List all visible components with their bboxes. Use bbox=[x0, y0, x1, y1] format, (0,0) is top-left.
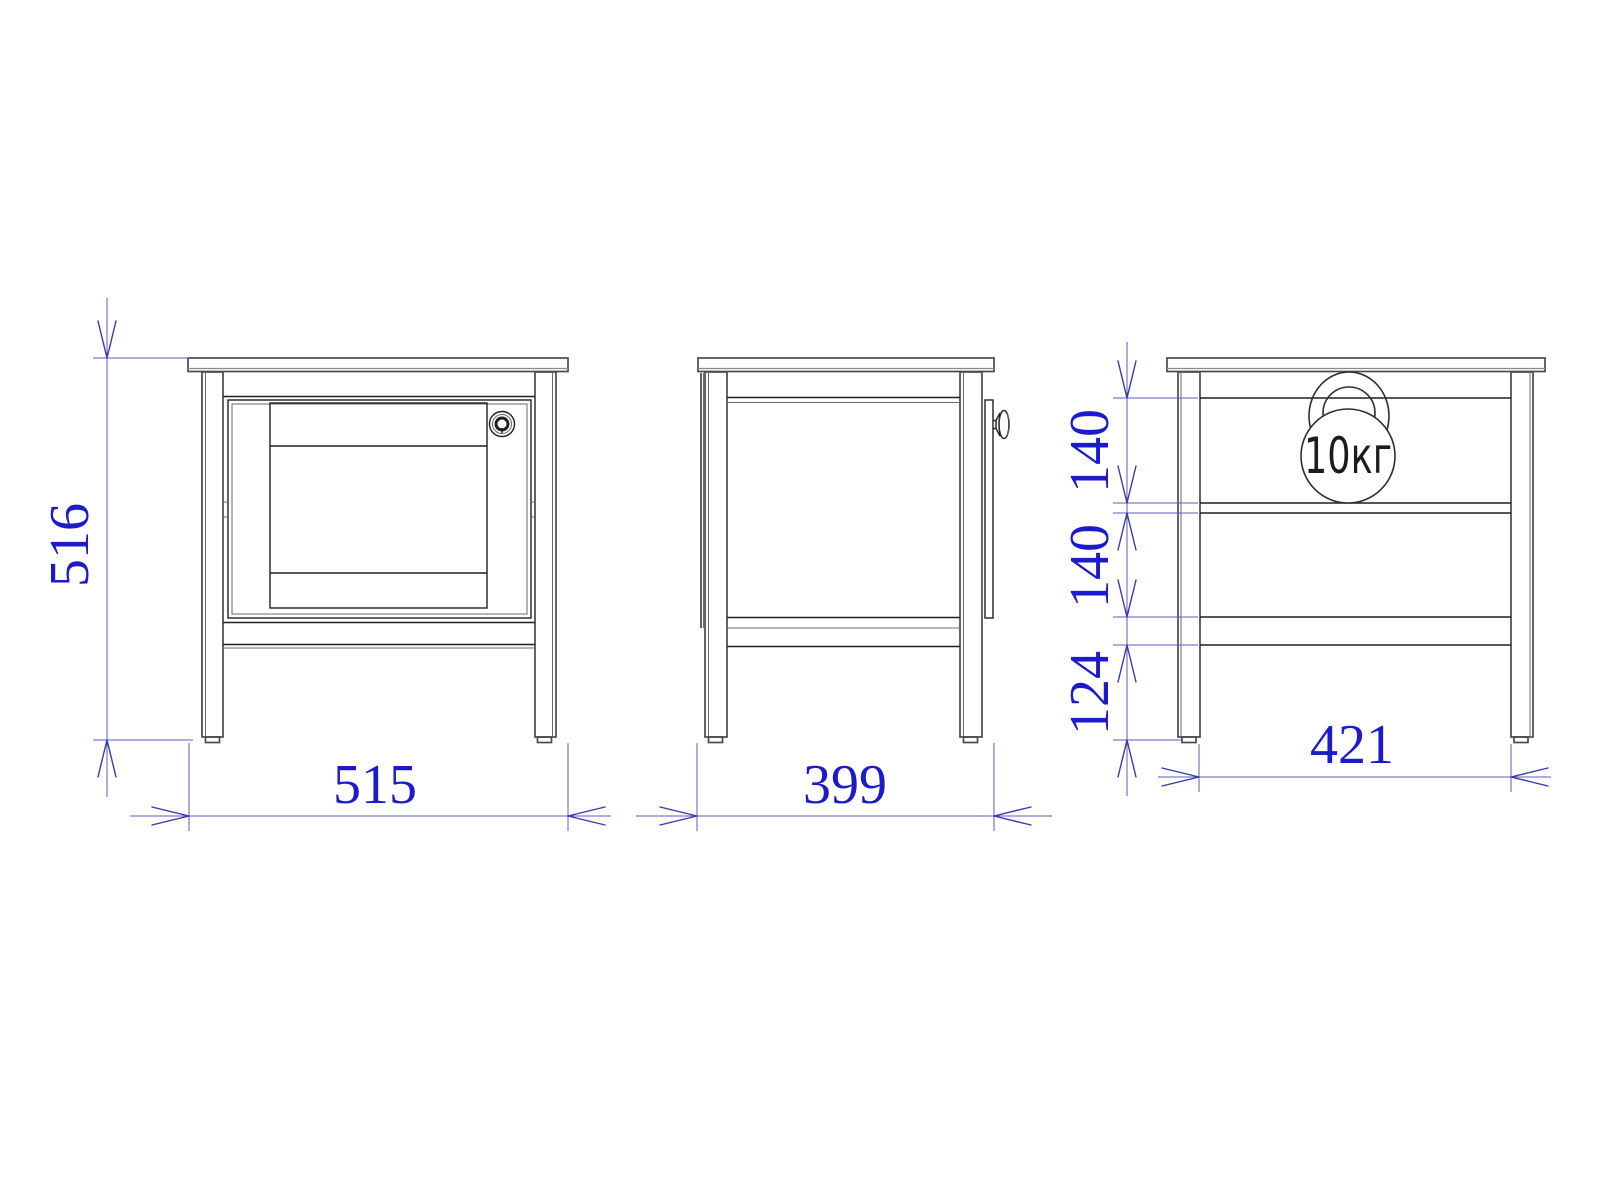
side-tabletop bbox=[698, 358, 994, 372]
rear-right-foot bbox=[1514, 737, 1528, 743]
dimension-rear-inner-width: 421 bbox=[1158, 714, 1551, 792]
front-view bbox=[188, 358, 568, 743]
kettlebell-10kg-icon: 10кг bbox=[1301, 372, 1395, 503]
front-door bbox=[228, 400, 531, 618]
depth-dimension-label: 399 bbox=[803, 754, 887, 816]
dimension-height: 516 bbox=[39, 298, 193, 797]
rear-tabletop bbox=[1167, 358, 1545, 372]
side-back-foot bbox=[709, 737, 723, 743]
rear-top-section-label: 140 bbox=[1059, 409, 1121, 493]
rear-middle-section-label: 140 bbox=[1059, 524, 1121, 608]
side-view bbox=[698, 358, 1010, 743]
rear-view: 10кг bbox=[1167, 358, 1545, 743]
dimension-width: 515 bbox=[130, 743, 611, 831]
rear-left-foot bbox=[1182, 737, 1196, 743]
height-dimension-label: 516 bbox=[39, 503, 101, 587]
drawing-canvas: 10кг 516 515 399 bbox=[0, 0, 1600, 1200]
side-door-profile bbox=[985, 400, 993, 618]
dimension-depth: 399 bbox=[636, 743, 1052, 831]
front-tabletop bbox=[188, 358, 568, 372]
load-capacity-label: 10кг bbox=[1304, 427, 1392, 485]
door-knob-icon bbox=[490, 412, 515, 437]
front-door-panel bbox=[270, 403, 487, 608]
front-right-foot bbox=[538, 737, 552, 743]
door-knob-side-icon bbox=[993, 411, 1010, 439]
side-front-foot bbox=[964, 737, 978, 743]
rear-inner-width-label: 421 bbox=[1310, 714, 1394, 776]
width-dimension-label: 515 bbox=[333, 754, 417, 816]
front-left-foot bbox=[206, 737, 220, 743]
rear-bottom-section-label: 124 bbox=[1059, 651, 1121, 735]
